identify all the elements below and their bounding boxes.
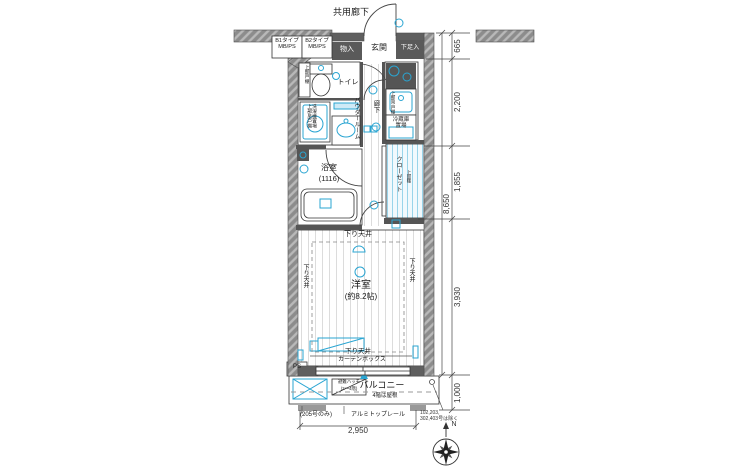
label-fridge-space: 冷蔵庫 置場 [387, 117, 415, 129]
label-compass-north: N [449, 421, 459, 429]
label-balcony-note: 4階は屋根 [362, 393, 408, 399]
label-toilet: トイレ [334, 79, 362, 87]
label-only-205: (205号のみ) [292, 412, 340, 419]
dim-2950: 2,950 [340, 427, 376, 436]
label-meter-box-b2: B2タイプ MB/PS [302, 38, 332, 51]
floor-plan: 共用廊下 B1タイプ MB/PS B2タイプ MB/PS 物入 玄関 下足入 ト… [0, 0, 730, 470]
dim-1000: 1,000 [453, 375, 463, 411]
dim-3930: 3,930 [453, 279, 463, 315]
label-lowered-ceiling-right: 下り天井 [405, 258, 414, 298]
label-main-room-size: (約8.2帖) [337, 293, 385, 302]
label-bathroom-module: (1116) [307, 175, 351, 183]
label-lowered-ceiling-bottom: 下り天井 [336, 348, 380, 355]
label-curtain-box: カーテンボックス [330, 357, 394, 364]
label-lowered-ceiling-top: 下り天井 [336, 231, 380, 239]
label-lowered-ceiling-left: 下り天井 [299, 264, 308, 304]
label-main-room: 洋室 [341, 280, 381, 291]
label-top-rail: アルミトップレール [344, 412, 412, 419]
label-escape-hatch-floors: (2〜4階) [333, 387, 365, 392]
label-laundry-space: 洗濯機置場 上部吊戸棚 [301, 104, 315, 142]
label-meter-box-b1: B1タイプ MB/PS [272, 38, 302, 51]
label-hallway: 廊下 [368, 100, 378, 122]
label-escape-hatch: 避難ハッチ [333, 380, 365, 385]
label-pipe-space: PS [288, 364, 306, 371]
dim-2200: 2,200 [453, 84, 463, 120]
dim-8650: 8,650 [442, 186, 452, 222]
label-bathroom: 浴室 [307, 164, 351, 173]
label-toilet-shelf: 上部戸棚 [300, 65, 309, 96]
label-kitchen-shelf: 上部吊戸棚 [386, 91, 395, 117]
label-powder-room: パウダールーム [349, 97, 359, 147]
label-closet-shelf: 上部棚 [403, 170, 411, 196]
window [316, 367, 410, 375]
dim-665: 665 [453, 28, 463, 64]
label-closet: クローゼット [391, 156, 401, 214]
label-storage: 物入 [332, 46, 362, 54]
dim-1855: 1,855 [453, 164, 463, 200]
label-shoe-cabinet: 下足入 [396, 45, 424, 52]
label-common-corridor: 共用廊下 [318, 7, 384, 17]
label-entrance: 玄関 [364, 44, 394, 53]
